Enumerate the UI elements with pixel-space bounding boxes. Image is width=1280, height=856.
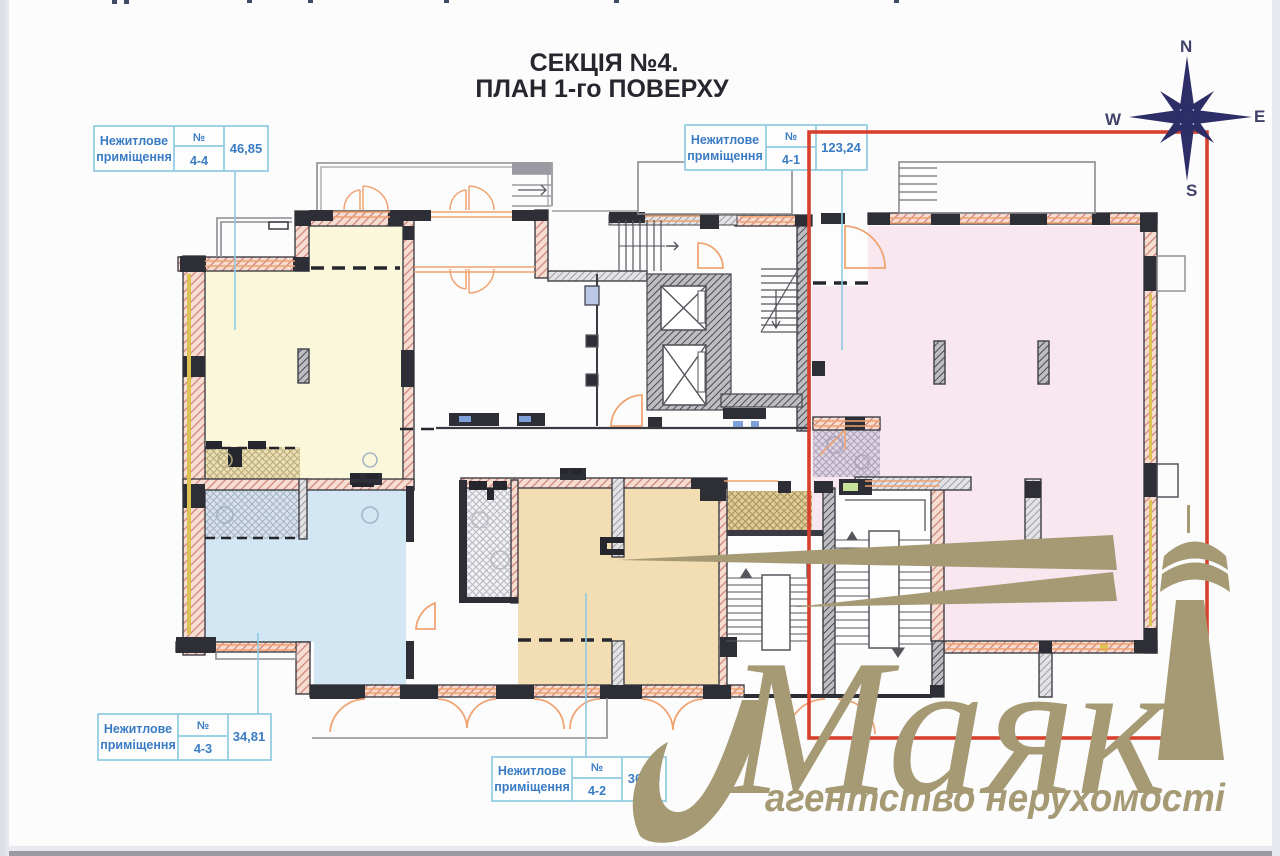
svg-text:46,85: 46,85 bbox=[230, 141, 263, 156]
svg-text:приміщення: приміщення bbox=[494, 780, 569, 794]
svg-text:S: S bbox=[1186, 181, 1197, 200]
svg-text:Нежитлове: Нежитлове bbox=[498, 764, 566, 778]
svg-text:приміщення: приміщення bbox=[96, 150, 171, 164]
svg-text:123,24: 123,24 bbox=[821, 140, 862, 155]
svg-text:Нежитлове: Нежитлове bbox=[691, 133, 759, 147]
svg-text:E: E bbox=[1254, 107, 1265, 126]
svg-text:№: № bbox=[785, 131, 797, 143]
svg-text:приміщення: приміщення bbox=[687, 149, 762, 163]
svg-text:№: № bbox=[197, 720, 209, 732]
svg-text:ПЛАН 1-го ПОВЕРХУ: ПЛАН 1-го ПОВЕРХУ bbox=[475, 75, 729, 103]
svg-text:34,81: 34,81 bbox=[233, 729, 266, 744]
svg-text:Нежитлове: Нежитлове bbox=[100, 134, 168, 148]
svg-text:СЕКЦІЯ №4.: СЕКЦІЯ №4. bbox=[530, 49, 679, 77]
svg-text:N: N bbox=[1180, 37, 1192, 56]
svg-text:приміщення: приміщення bbox=[100, 738, 175, 752]
svg-text:4-4: 4-4 bbox=[190, 154, 208, 168]
svg-text:№: № bbox=[591, 762, 603, 774]
svg-text:агентство нерухомості: агентство нерухомості bbox=[765, 777, 1226, 820]
svg-text:№: № bbox=[193, 132, 205, 144]
svg-text:4-3: 4-3 bbox=[194, 742, 212, 756]
svg-text:4-1: 4-1 bbox=[782, 153, 800, 167]
svg-text:Нежитлове: Нежитлове bbox=[104, 722, 172, 736]
svg-text:W: W bbox=[1105, 110, 1122, 129]
svg-text:4-2: 4-2 bbox=[588, 784, 606, 798]
